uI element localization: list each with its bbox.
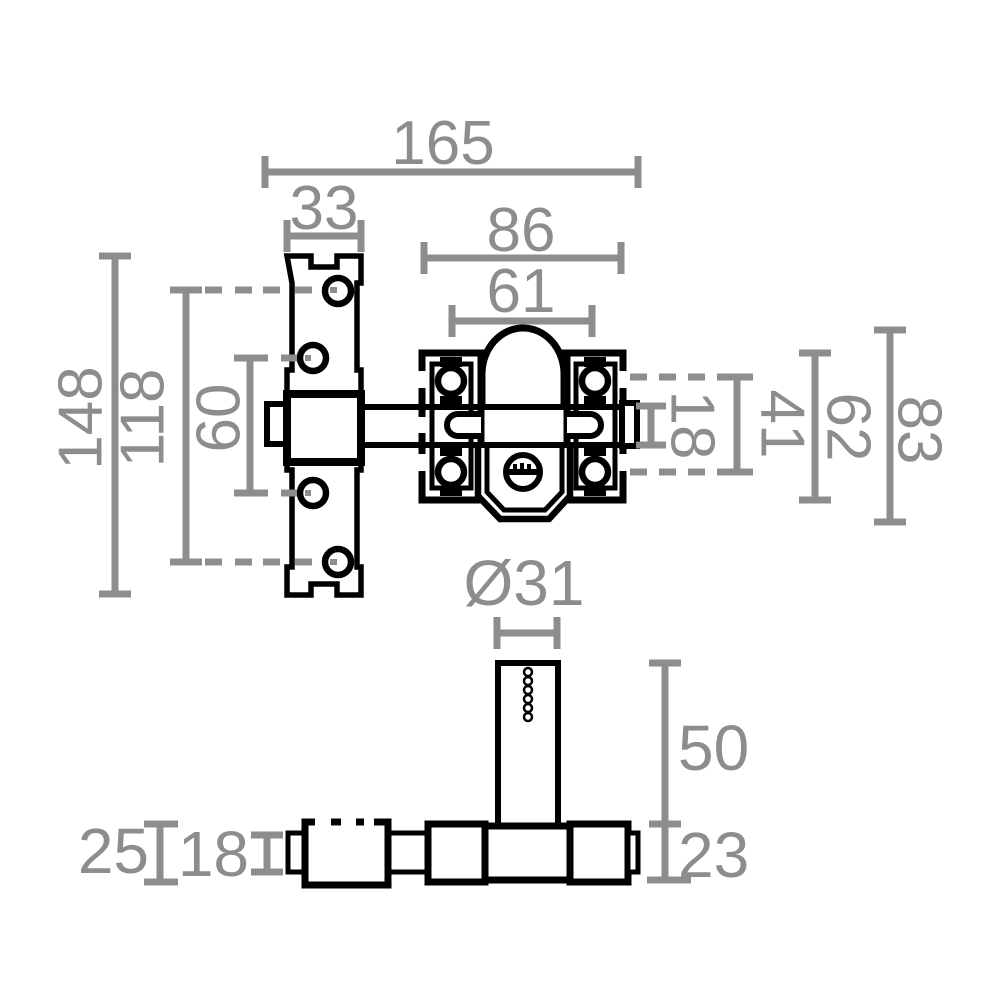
label-bolt-height: 18 xyxy=(657,391,726,460)
keeper-hidden-edge-dashes xyxy=(315,818,374,827)
bolt-end-profile xyxy=(628,833,638,872)
label-inner-hole-spacing: 60 xyxy=(185,384,254,453)
base-center-profile xyxy=(485,826,572,880)
guide-block-left xyxy=(428,824,485,882)
label-plate-opening: 41 xyxy=(747,390,816,459)
screw-hole xyxy=(582,459,608,485)
left-plate-slot xyxy=(447,414,481,436)
label-screw-spacing: 61 xyxy=(487,257,556,326)
label-keeper-width: 33 xyxy=(290,174,359,243)
drawing-page: 165 33 86 61 148 118 60 18 41 62 83 Ø31 … xyxy=(0,0,1000,1000)
lock-dimension-drawing: 165 33 86 61 148 118 60 18 41 62 83 Ø31 … xyxy=(0,0,1000,1000)
label-bolt-depth: 18 xyxy=(178,818,249,890)
right-plate-slot xyxy=(567,414,601,436)
dimension-cylinder-diameter xyxy=(497,617,557,649)
bolt-bar-left xyxy=(359,407,426,445)
label-cylinder-height: 50 xyxy=(678,712,749,784)
screw-hole xyxy=(438,459,464,485)
label-keeper-height: 148 xyxy=(47,366,116,469)
label-outer-hole-spacing: 118 xyxy=(109,369,178,468)
label-keeper-depth: 25 xyxy=(78,815,149,887)
cylinder-dome xyxy=(482,328,564,407)
dimension-cylinder-height xyxy=(649,663,681,824)
screw-hole xyxy=(438,368,464,394)
bolt-bar-profile xyxy=(388,833,430,872)
bottom-view xyxy=(288,663,638,885)
screw-hole xyxy=(325,549,351,575)
screw-hole xyxy=(325,278,351,304)
label-body-height: 62 xyxy=(813,393,882,462)
dimension-keeper-depth xyxy=(144,824,178,882)
screw-hole xyxy=(300,480,326,506)
screw-hole xyxy=(300,345,326,371)
keeper-profile xyxy=(305,822,388,885)
dimension-bolt-depth xyxy=(251,835,283,872)
label-overall-height: 83 xyxy=(884,396,953,465)
label-cylinder-diameter: Ø31 xyxy=(464,547,585,619)
screw-hole xyxy=(582,368,608,394)
bolt-end-stub xyxy=(622,403,637,446)
guide-block-right xyxy=(570,824,628,882)
keeper-guide-box xyxy=(287,394,361,462)
label-total-length: 165 xyxy=(391,109,494,178)
label-body-width: 86 xyxy=(487,196,556,265)
label-body-depth: 23 xyxy=(678,819,749,891)
